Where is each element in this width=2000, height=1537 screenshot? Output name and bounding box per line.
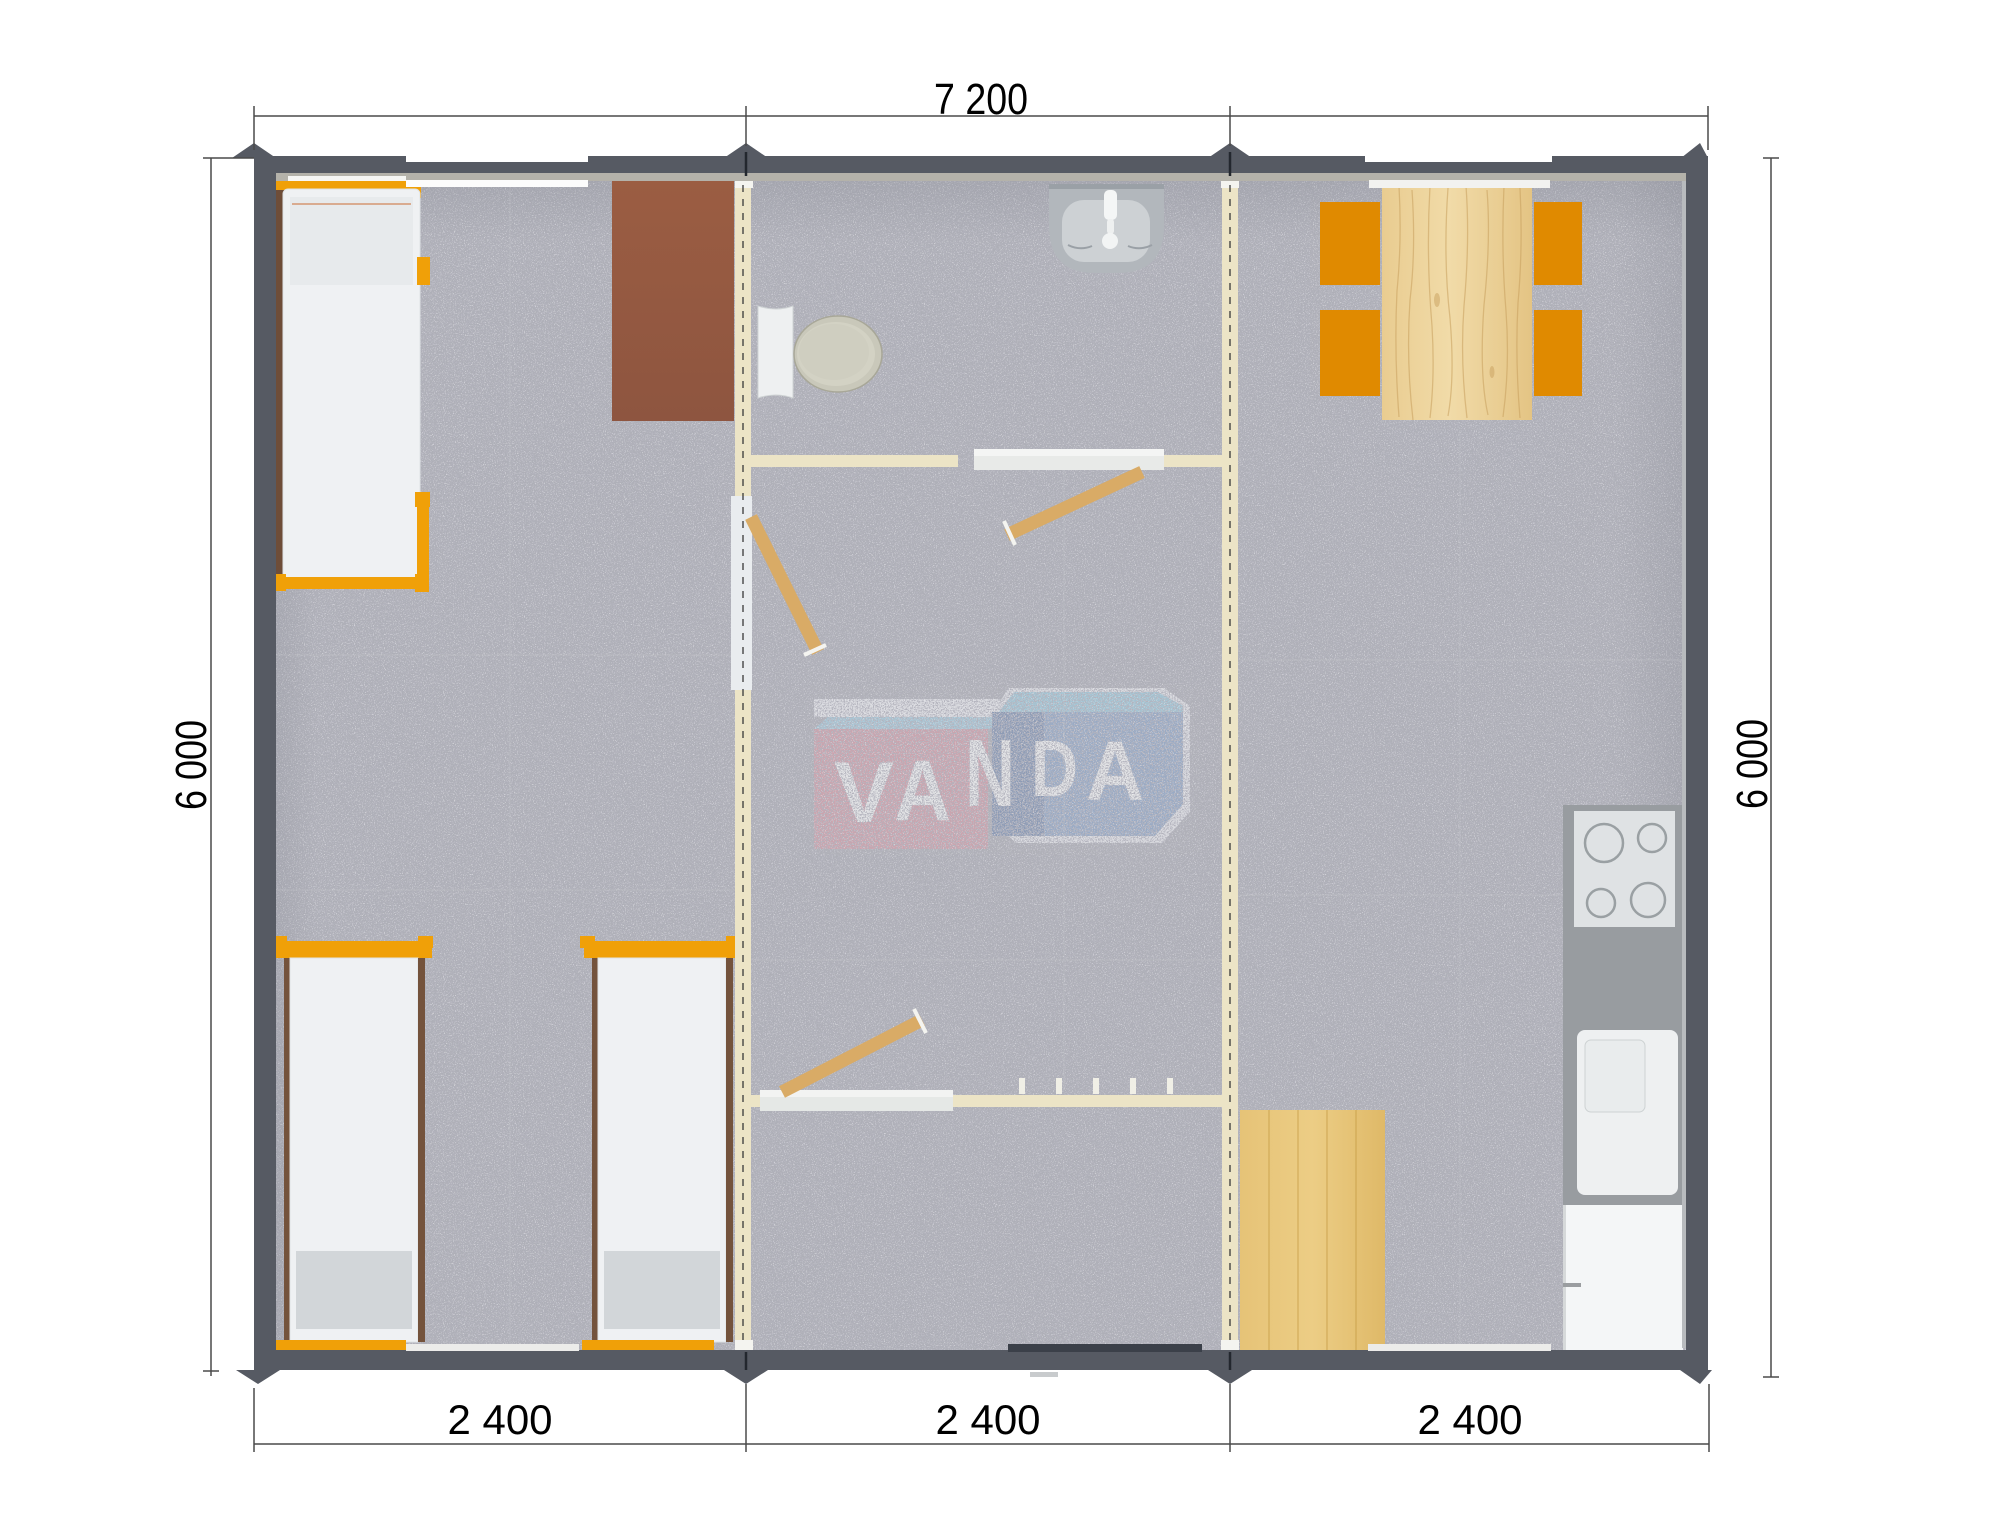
svg-text:6 000: 6 000	[167, 720, 216, 810]
svg-text:2 400: 2 400	[1417, 1396, 1522, 1443]
svg-text:2 400: 2 400	[447, 1396, 552, 1443]
svg-text:2 400: 2 400	[935, 1396, 1040, 1443]
svg-text:6 000: 6 000	[1728, 719, 1777, 809]
svg-text:7 200: 7 200	[934, 75, 1028, 124]
